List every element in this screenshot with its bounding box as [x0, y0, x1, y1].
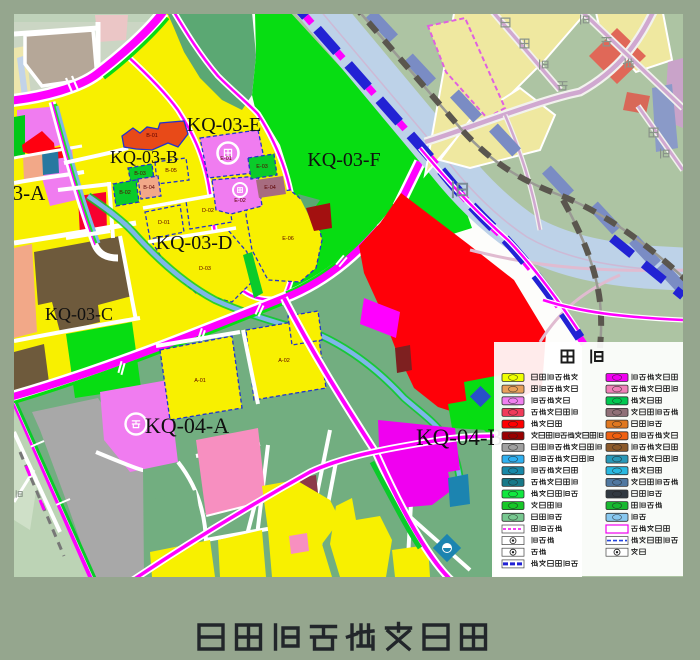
svg-text:KQ-04-B: KQ-04-B	[416, 425, 503, 450]
svg-text:E-06: E-06	[282, 236, 294, 242]
svg-text:A-02: A-02	[278, 358, 290, 364]
svg-text:KQ-04-A: KQ-04-A	[145, 413, 229, 438]
svg-text:A-01: A-01	[194, 378, 206, 384]
svg-text:KQ-03-E: KQ-03-E	[187, 114, 261, 136]
svg-text:KQ-03-B: KQ-03-B	[110, 147, 178, 167]
svg-text:B-04: B-04	[143, 185, 155, 191]
svg-text:KQ-03-F: KQ-03-F	[307, 149, 380, 171]
svg-text:D-01: D-01	[158, 220, 170, 226]
svg-text:B-02: B-02	[119, 190, 131, 196]
svg-text:B-03: B-03	[134, 171, 146, 177]
svg-text:3-A: 3-A	[13, 181, 46, 205]
svg-text:B-01: B-01	[146, 133, 158, 139]
svg-text:E-02: E-02	[234, 198, 246, 204]
svg-text:E-03: E-03	[256, 164, 268, 170]
svg-text:B-05: B-05	[165, 168, 177, 174]
svg-text:D-03: D-03	[199, 266, 211, 272]
svg-text:KQ-03-D: KQ-03-D	[156, 232, 233, 254]
svg-text:D-02: D-02	[202, 208, 214, 214]
svg-text:E-01: E-01	[220, 156, 232, 162]
svg-text:E-04: E-04	[264, 185, 276, 191]
svg-text:KQ-03-C: KQ-03-C	[45, 304, 113, 324]
